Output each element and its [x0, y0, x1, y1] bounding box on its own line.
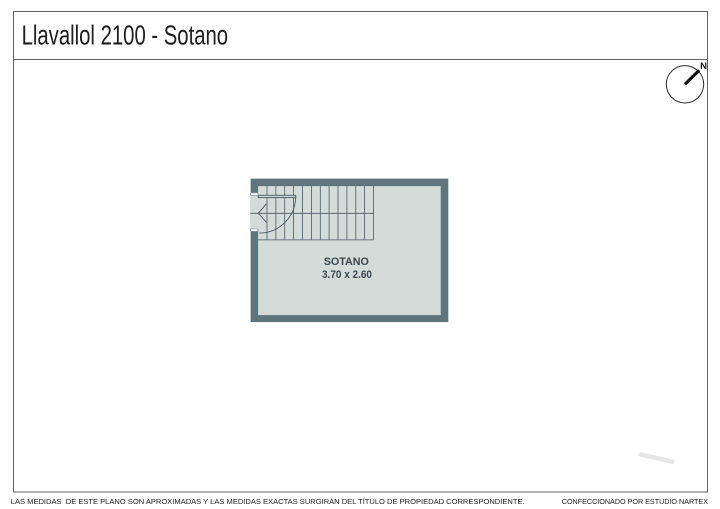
svg-text:N: N	[700, 61, 707, 72]
svg-text:Llavallol 2100 - Sotano: Llavallol 2100 - Sotano	[22, 20, 229, 51]
svg-text:3.70 x 2.60: 3.70 x 2.60	[322, 269, 372, 281]
svg-text:CONFECCIONADO POR ESTUDIO NART: CONFECCIONADO POR ESTUDIO NARTEX	[562, 497, 708, 506]
svg-text:LAS MEDIDAS DE ESTE PLANO SON: LAS MEDIDAS DE ESTE PLANO SON APROXIMADA…	[11, 497, 525, 506]
svg-text:SOTANO: SOTANO	[324, 256, 370, 268]
